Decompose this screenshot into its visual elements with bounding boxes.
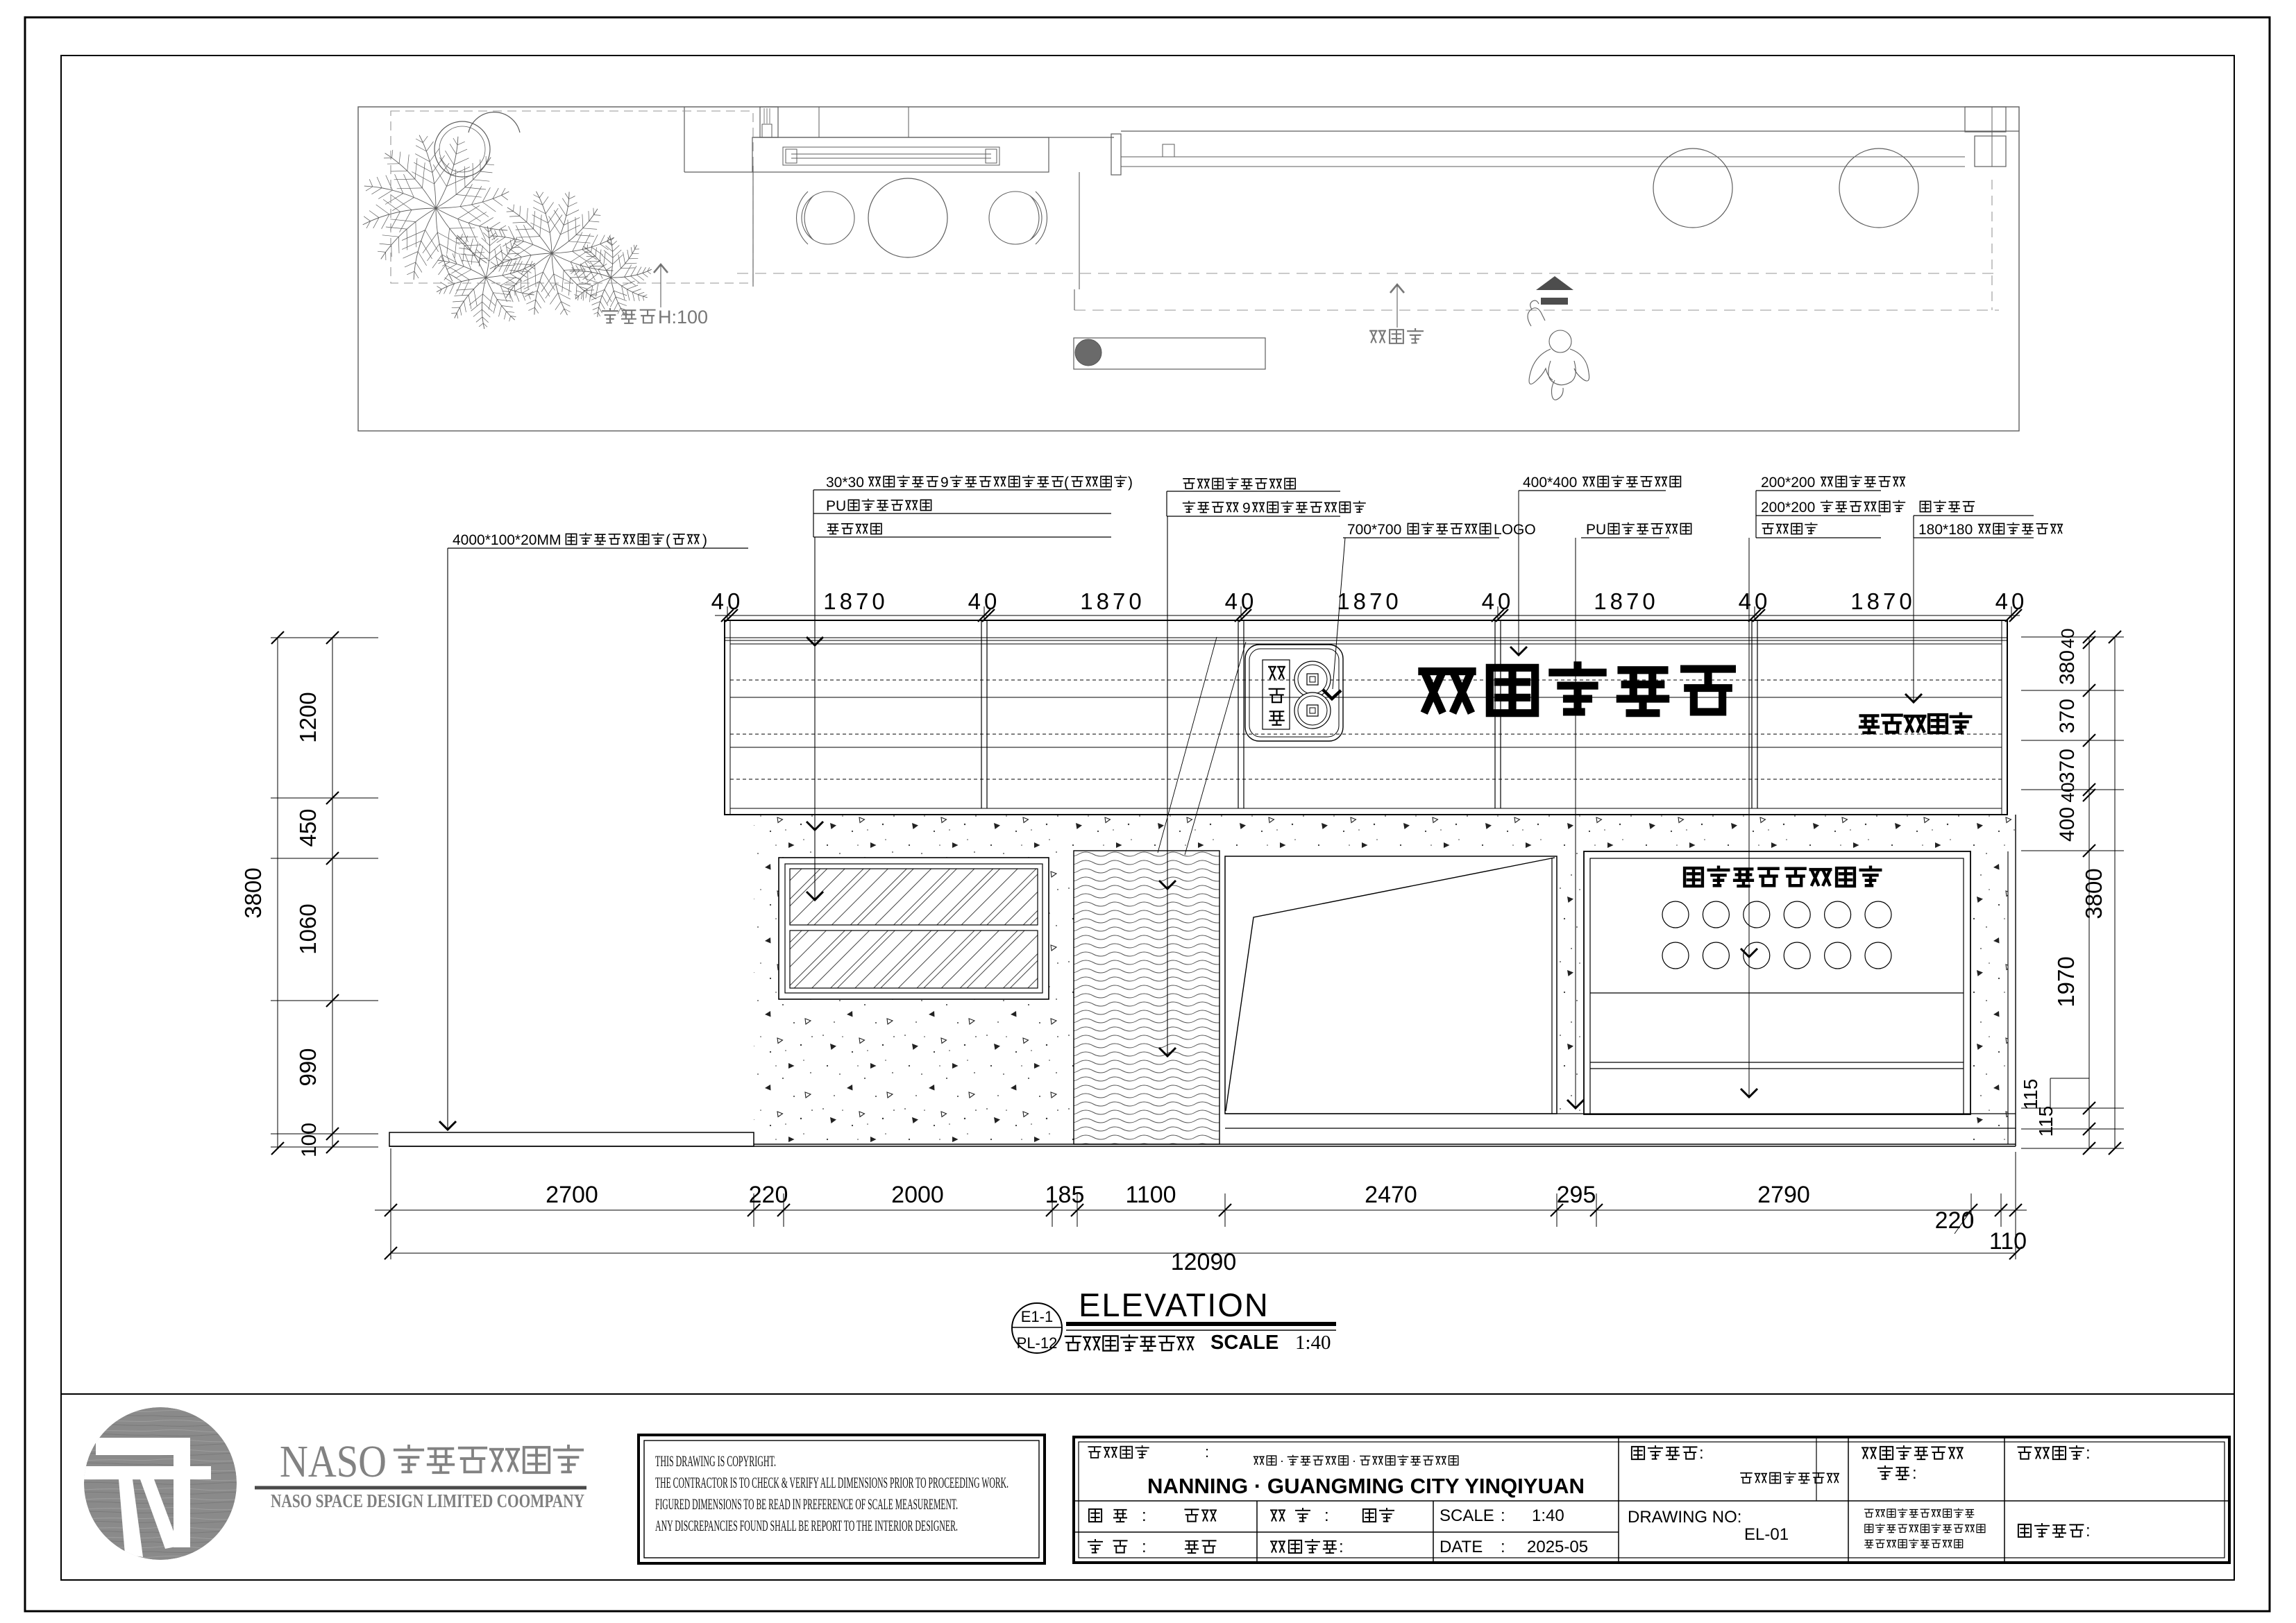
svg-text::: : (1699, 1444, 1704, 1463)
svg-text:1:40: 1:40 (1532, 1506, 1564, 1525)
svg-text:110: 110 (1989, 1228, 2027, 1255)
svg-text:450: 450 (295, 808, 321, 847)
svg-text:40: 40 (1225, 588, 1258, 614)
svg-text::: : (1205, 1443, 1209, 1461)
svg-text:12090: 12090 (1171, 1249, 1237, 1275)
svg-text:NASO: NASO (280, 1436, 387, 1487)
svg-text:PL-12: PL-12 (1017, 1334, 1058, 1352)
svg-text:·: · (1352, 1454, 1356, 1468)
svg-text:40: 40 (1482, 588, 1514, 614)
svg-text:1870: 1870 (1337, 588, 1401, 614)
svg-text:E1-1: E1-1 (1021, 1308, 1053, 1325)
svg-text:400: 400 (2056, 807, 2079, 842)
svg-text:DRAWING NO:: DRAWING NO: (1628, 1508, 1741, 1527)
svg-text::: : (1339, 1538, 1344, 1556)
svg-text:200*200: 200*200 (1761, 500, 1815, 516)
svg-text:LOGO: LOGO (1494, 522, 1536, 538)
svg-text:THE CONTRACTOR IS TO CHECK & V: THE CONTRACTOR IS TO CHECK & VERIFY ALL … (655, 1474, 1008, 1491)
svg-text:(: ( (1064, 475, 1069, 491)
svg-text:1200: 1200 (295, 692, 321, 742)
svg-text:PU: PU (826, 498, 846, 514)
svg-text:): ) (702, 532, 707, 548)
svg-text:185: 185 (1045, 1182, 1085, 1208)
svg-text:990: 990 (295, 1048, 321, 1086)
svg-text:40: 40 (711, 588, 744, 614)
svg-text:THIS DRAWING IS COPYRIGHT.: THIS DRAWING IS COPYRIGHT. (655, 1452, 776, 1470)
svg-text:370: 370 (2056, 749, 2079, 783)
svg-text:9: 9 (1242, 500, 1251, 516)
svg-text:ANY DISCREPANCIES FOUND SHALL: ANY DISCREPANCIES FOUND SHALL BE REPORT … (655, 1517, 958, 1534)
svg-text:·: · (1280, 1454, 1284, 1468)
svg-text::: : (1501, 1538, 1505, 1556)
svg-text:1970: 1970 (2053, 956, 2079, 1007)
svg-text:3800: 3800 (2081, 868, 2107, 919)
svg-text::: : (1912, 1464, 1917, 1483)
svg-text:220: 220 (749, 1182, 788, 1208)
svg-text:295: 295 (1557, 1182, 1596, 1208)
svg-text:1870: 1870 (1080, 588, 1145, 614)
svg-text::: : (1142, 1506, 1147, 1525)
svg-text:SCALE: SCALE (1440, 1506, 1494, 1525)
svg-text:40: 40 (2057, 783, 2078, 803)
svg-text:): ) (1128, 475, 1133, 491)
svg-text:EL-01: EL-01 (1744, 1525, 1789, 1544)
svg-text:9: 9 (940, 475, 949, 491)
svg-text:200*200: 200*200 (1761, 475, 1815, 491)
svg-text:100: 100 (298, 1123, 321, 1157)
svg-text:380: 380 (2056, 650, 2079, 685)
svg-text:40: 40 (1995, 588, 2028, 614)
svg-text:2700: 2700 (546, 1182, 598, 1208)
svg-text:40: 40 (2057, 629, 2078, 649)
svg-text:(: ( (666, 532, 670, 548)
svg-text:30*30: 30*30 (826, 475, 864, 491)
svg-text:2470: 2470 (1365, 1182, 1417, 1208)
svg-text:115: 115 (2020, 1079, 2041, 1110)
svg-text::: : (2086, 1522, 2091, 1540)
svg-text:115: 115 (2035, 1106, 2057, 1137)
svg-text:2790: 2790 (1757, 1182, 1810, 1208)
svg-text:NANNING · GUANGMING CITY YINQI: NANNING · GUANGMING CITY YINQIYUAN (1147, 1474, 1585, 1498)
svg-text:40: 40 (968, 588, 1001, 614)
svg-text:4000*100*20MM: 4000*100*20MM (453, 532, 561, 548)
svg-text:1060: 1060 (295, 903, 321, 954)
svg-text:FIGURED DIMENSIONS TO BE READ: FIGURED DIMENSIONS TO BE READ IN PREFERE… (655, 1495, 958, 1513)
svg-text:NASO SPACE DESIGN LIMITED: NASO SPACE DESIGN LIMITED COOMPANY (271, 1490, 584, 1511)
svg-text:3800: 3800 (240, 867, 266, 918)
svg-text:1870: 1870 (1850, 588, 1915, 614)
svg-text:40: 40 (1739, 588, 1771, 614)
svg-text:1:40: 1:40 (1295, 1332, 1331, 1354)
svg-text:370: 370 (2056, 699, 2079, 733)
svg-text::: : (1142, 1538, 1147, 1556)
svg-text::: : (1501, 1506, 1505, 1525)
svg-text:1870: 1870 (823, 588, 888, 614)
svg-text::: : (2086, 1444, 2091, 1463)
svg-text:2000: 2000 (891, 1182, 944, 1208)
svg-text:180*180: 180*180 (1918, 522, 1973, 538)
svg-text:DATE: DATE (1440, 1538, 1483, 1556)
svg-text:SCALE: SCALE (1210, 1332, 1278, 1354)
svg-text:1100: 1100 (1125, 1182, 1176, 1208)
svg-text:H:100: H:100 (658, 307, 708, 328)
svg-text:ELEVATION: ELEVATION (1079, 1286, 1269, 1323)
svg-text::: : (1324, 1506, 1329, 1525)
svg-text:1870: 1870 (1594, 588, 1658, 614)
svg-text:220: 220 (1935, 1207, 1975, 1234)
svg-text:2025-05: 2025-05 (1527, 1538, 1588, 1556)
svg-text:PU: PU (1586, 522, 1606, 538)
svg-text:400*400: 400*400 (1523, 475, 1577, 491)
svg-text:700*700: 700*700 (1347, 522, 1401, 538)
